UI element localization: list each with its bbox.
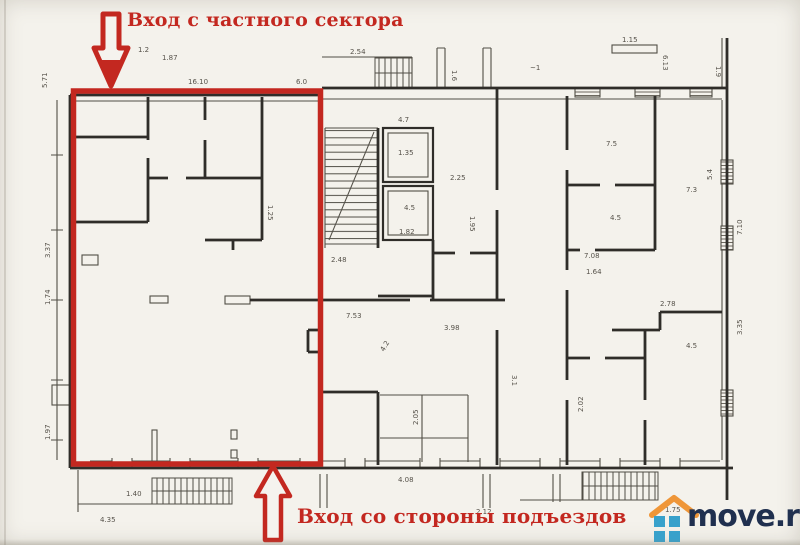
svg-text:2.05: 2.05 [412, 409, 420, 425]
entrance-arrow-down-icon [94, 14, 128, 86]
svg-text:16.10: 16.10 [188, 78, 208, 86]
svg-text:4.5: 4.5 [610, 214, 621, 222]
highlight-rectangle [74, 91, 321, 464]
svg-text:4.7: 4.7 [398, 116, 409, 124]
move-ru-wordmark: move.ru [687, 502, 800, 532]
bottom-entrance-label: Вход со стороны подъездов [297, 504, 627, 528]
svg-text:7.10: 7.10 [736, 219, 744, 235]
svg-text:1.74: 1.74 [44, 289, 52, 305]
svg-text:7.5: 7.5 [606, 140, 617, 148]
svg-text:1.2: 1.2 [138, 46, 149, 54]
svg-text:5.71: 5.71 [41, 72, 49, 88]
floor-plan-drawing: 2.541.8716.101.26.01.156.131.9~11.65.713… [0, 0, 800, 545]
stair-hatching [152, 58, 658, 504]
svg-text:1.40: 1.40 [126, 490, 142, 498]
svg-text:2.25: 2.25 [450, 174, 466, 182]
svg-text:1.9: 1.9 [714, 66, 722, 77]
top-entrance-label: Вход с частного сектора [127, 9, 404, 31]
svg-text:4.08: 4.08 [398, 476, 414, 484]
svg-text:4.35: 4.35 [100, 516, 116, 524]
svg-text:2.54: 2.54 [350, 48, 366, 56]
svg-text:1.35: 1.35 [398, 149, 414, 157]
svg-text:3.37: 3.37 [44, 242, 52, 258]
svg-text:1.25: 1.25 [266, 205, 274, 221]
svg-text:6.0: 6.0 [296, 78, 307, 86]
svg-text:2.78: 2.78 [660, 300, 676, 308]
svg-text:2.48: 2.48 [331, 256, 347, 264]
dimension-labels: 2.541.8716.101.26.01.156.131.9~11.65.713… [41, 36, 744, 524]
svg-text:7.08: 7.08 [584, 252, 600, 260]
svg-text:4.2: 4.2 [379, 339, 391, 353]
move-ru-watermark: move.ru [645, 494, 795, 542]
svg-text:1.95: 1.95 [468, 216, 476, 232]
heavy-walls [70, 38, 733, 500]
svg-text:4.5: 4.5 [404, 204, 415, 212]
svg-text:1.15: 1.15 [622, 36, 638, 44]
svg-text:1.97: 1.97 [44, 424, 52, 440]
svg-text:2.02: 2.02 [577, 396, 585, 412]
svg-text:~1: ~1 [530, 64, 540, 72]
svg-text:7.53: 7.53 [346, 312, 362, 320]
thin-walls [51, 38, 733, 512]
floorplan-image: 2.541.8716.101.26.01.156.131.9~11.65.713… [0, 0, 800, 545]
svg-text:3.1: 3.1 [510, 375, 518, 386]
svg-text:5.4: 5.4 [706, 168, 714, 180]
svg-text:4.5: 4.5 [686, 342, 697, 350]
svg-text:3.35: 3.35 [736, 319, 744, 335]
svg-text:3.98: 3.98 [444, 324, 460, 332]
svg-text:1.87: 1.87 [162, 54, 178, 62]
svg-text:1.64: 1.64 [586, 268, 602, 276]
svg-text:1.6: 1.6 [450, 70, 458, 82]
entrance-arrow-up-icon [256, 466, 290, 540]
svg-text:7.3: 7.3 [686, 186, 697, 194]
svg-text:6.13: 6.13 [661, 55, 669, 71]
svg-text:1.82: 1.82 [399, 228, 415, 236]
